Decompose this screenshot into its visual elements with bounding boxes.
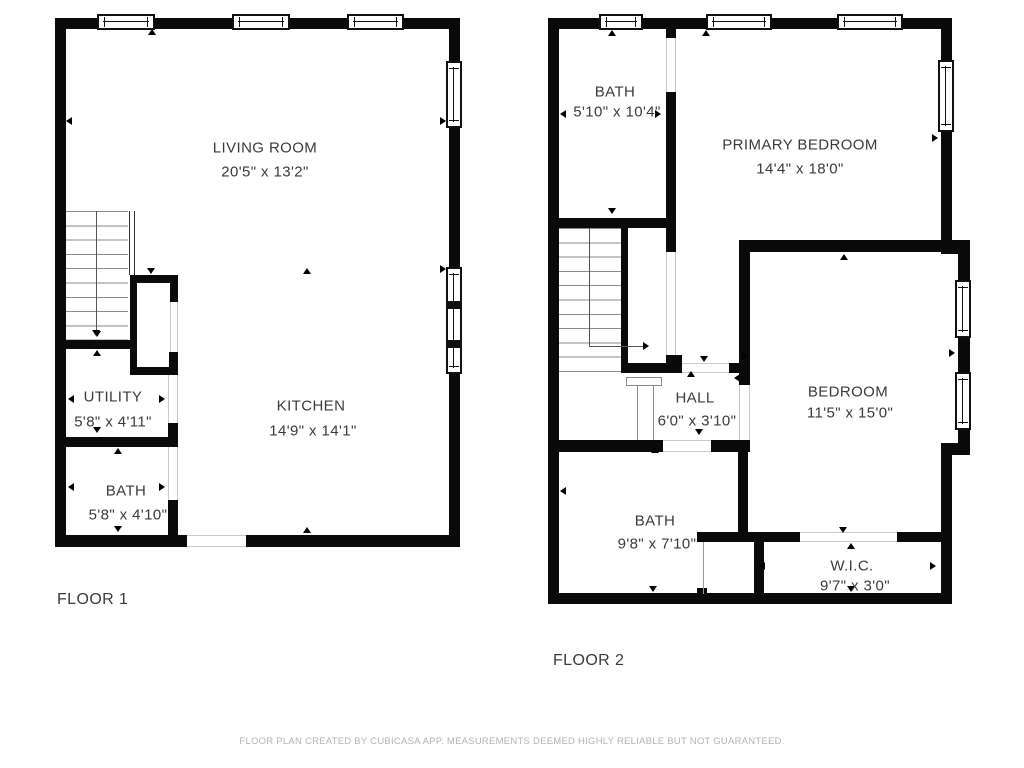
wall-segment bbox=[941, 443, 970, 455]
measure-arrow-icon bbox=[440, 117, 446, 125]
room-name-label: KITCHEN bbox=[277, 398, 346, 415]
door-opening bbox=[168, 375, 178, 423]
measure-arrow-icon bbox=[649, 586, 657, 592]
wall-segment bbox=[941, 18, 952, 252]
wall-segment bbox=[55, 437, 178, 447]
wall-segment bbox=[55, 340, 137, 349]
wall-segment bbox=[168, 500, 178, 547]
floor-plan-canvas: LIVING ROOM 20'5" x 13'2" KITCHEN 14'9" … bbox=[0, 0, 1024, 768]
measure-arrow-icon bbox=[114, 526, 122, 532]
measure-arrow-icon bbox=[839, 527, 847, 533]
measure-arrow-icon bbox=[560, 110, 566, 118]
measure-arrow-icon bbox=[700, 356, 708, 362]
room-name-label: W.I.C. bbox=[830, 558, 873, 575]
wall-segment bbox=[666, 92, 676, 252]
measure-arrow-icon bbox=[147, 268, 155, 274]
stair-winder-line bbox=[637, 386, 638, 440]
wall-segment bbox=[739, 240, 750, 385]
room-dimensions-label: 20'5" x 13'2" bbox=[221, 164, 308, 181]
door-opening bbox=[663, 440, 711, 452]
measure-arrow-icon bbox=[608, 30, 616, 36]
window-symbol bbox=[837, 14, 903, 30]
room-dimensions-label: 9'7" x 3'0" bbox=[820, 578, 890, 595]
wall-segment bbox=[621, 228, 628, 363]
door-opening bbox=[800, 532, 897, 542]
measure-arrow-icon bbox=[930, 562, 936, 570]
wall-segment bbox=[897, 532, 942, 542]
door-opening bbox=[187, 535, 246, 547]
room-name-label: BATH bbox=[595, 84, 636, 101]
window-symbol bbox=[938, 60, 954, 132]
measure-arrow-icon bbox=[734, 374, 740, 382]
stairs-symbol bbox=[66, 211, 128, 340]
room-name-label: UTILITY bbox=[84, 389, 143, 406]
stair-edge-line bbox=[129, 211, 130, 275]
wall-segment bbox=[666, 355, 682, 373]
stair-railing bbox=[626, 377, 662, 386]
window-symbol bbox=[446, 267, 462, 374]
measure-arrow-icon bbox=[687, 371, 695, 377]
window-symbol bbox=[446, 61, 462, 128]
window-symbol bbox=[232, 14, 290, 30]
measure-arrow-icon bbox=[847, 543, 855, 549]
wall-segment bbox=[557, 440, 663, 452]
wall-segment bbox=[130, 275, 137, 375]
door-opening bbox=[739, 385, 750, 440]
window-symbol bbox=[955, 372, 971, 430]
stair-direction-arrow-icon bbox=[643, 342, 649, 350]
measure-arrow-icon bbox=[148, 29, 156, 35]
wall-segment bbox=[548, 593, 952, 604]
wall-segment bbox=[55, 18, 66, 547]
wall-segment bbox=[246, 535, 460, 547]
wall-segment bbox=[130, 367, 178, 375]
room-name-label: LIVING ROOM bbox=[213, 140, 317, 157]
room-name-label: BATH bbox=[106, 483, 147, 500]
window-symbol bbox=[955, 280, 971, 338]
measure-arrow-icon bbox=[440, 265, 446, 273]
room-name-label: BATH bbox=[635, 513, 676, 530]
wall-segment bbox=[548, 218, 667, 228]
room-dimensions-label: 5'8" x 4'10" bbox=[89, 507, 168, 524]
wall-segment bbox=[170, 275, 178, 302]
measure-arrow-icon bbox=[93, 350, 101, 356]
stair-direction-line bbox=[589, 346, 644, 347]
wall-segment bbox=[941, 455, 952, 604]
wall-segment bbox=[754, 542, 764, 604]
door-opening bbox=[168, 447, 178, 500]
stair-winder-line bbox=[653, 386, 654, 440]
room-dimensions-label: 11'5" x 15'0" bbox=[807, 405, 893, 422]
room-name-label: HALL bbox=[675, 390, 714, 407]
measure-arrow-icon bbox=[93, 331, 101, 337]
room-dimensions-label: 9'8" x 7'10" bbox=[618, 536, 697, 553]
stair-direction-line bbox=[96, 211, 97, 332]
measure-arrow-icon bbox=[840, 254, 848, 260]
measure-arrow-icon bbox=[159, 483, 165, 491]
measure-arrow-icon bbox=[759, 562, 765, 570]
window-divider bbox=[446, 301, 462, 309]
window-symbol bbox=[97, 14, 155, 30]
stair-direction-line bbox=[589, 228, 590, 347]
measure-arrow-icon bbox=[303, 527, 311, 533]
measure-arrow-icon bbox=[702, 30, 710, 36]
floor-label: FLOOR 1 bbox=[57, 591, 128, 609]
room-dimensions-label: 14'4" x 18'0" bbox=[756, 161, 843, 178]
measure-arrow-icon bbox=[66, 117, 72, 125]
wall-segment bbox=[711, 440, 750, 452]
measure-arrow-icon bbox=[159, 395, 165, 403]
measure-arrow-icon bbox=[651, 447, 659, 453]
room-dimensions-label: 14'9" x 14'1" bbox=[269, 423, 356, 440]
window-symbol bbox=[599, 14, 643, 30]
wall-segment bbox=[666, 29, 676, 38]
window-symbol bbox=[347, 14, 404, 30]
measure-arrow-icon bbox=[949, 349, 955, 357]
window-symbol bbox=[706, 14, 772, 30]
room-dimensions-label: 5'8" x 4'11" bbox=[74, 414, 152, 431]
wall-segment bbox=[739, 240, 970, 252]
measure-arrow-icon bbox=[68, 483, 74, 491]
wall-segment bbox=[738, 452, 748, 533]
shower-glass-line bbox=[703, 542, 704, 594]
room-dimensions-label: 6'0" x 3'10" bbox=[658, 413, 737, 430]
stair-edge-line bbox=[134, 211, 135, 275]
measure-arrow-icon bbox=[932, 134, 938, 142]
measure-arrow-icon bbox=[608, 208, 616, 214]
wall-segment bbox=[548, 18, 559, 604]
door-opening bbox=[666, 252, 676, 355]
door-opening bbox=[170, 302, 178, 352]
measure-arrow-icon bbox=[742, 352, 748, 360]
wall-segment bbox=[697, 532, 800, 542]
door-opening bbox=[666, 38, 676, 92]
measure-arrow-icon bbox=[303, 268, 311, 274]
disclaimer-text: FLOOR PLAN CREATED BY CUBICASA APP. MEAS… bbox=[0, 736, 1024, 747]
measure-arrow-icon bbox=[560, 487, 566, 495]
measure-arrow-icon bbox=[68, 395, 74, 403]
room-name-label: BEDROOM bbox=[808, 384, 888, 401]
wall-segment bbox=[697, 588, 707, 596]
floor-label: FLOOR 2 bbox=[553, 652, 624, 670]
stairs-symbol bbox=[559, 228, 621, 385]
room-dimensions-label: 5'10" x 10'4" bbox=[573, 104, 660, 121]
measure-arrow-icon bbox=[114, 448, 122, 454]
room-name-label: PRIMARY BEDROOM bbox=[722, 137, 877, 154]
measure-arrow-icon bbox=[695, 429, 703, 435]
window-divider bbox=[446, 340, 462, 348]
